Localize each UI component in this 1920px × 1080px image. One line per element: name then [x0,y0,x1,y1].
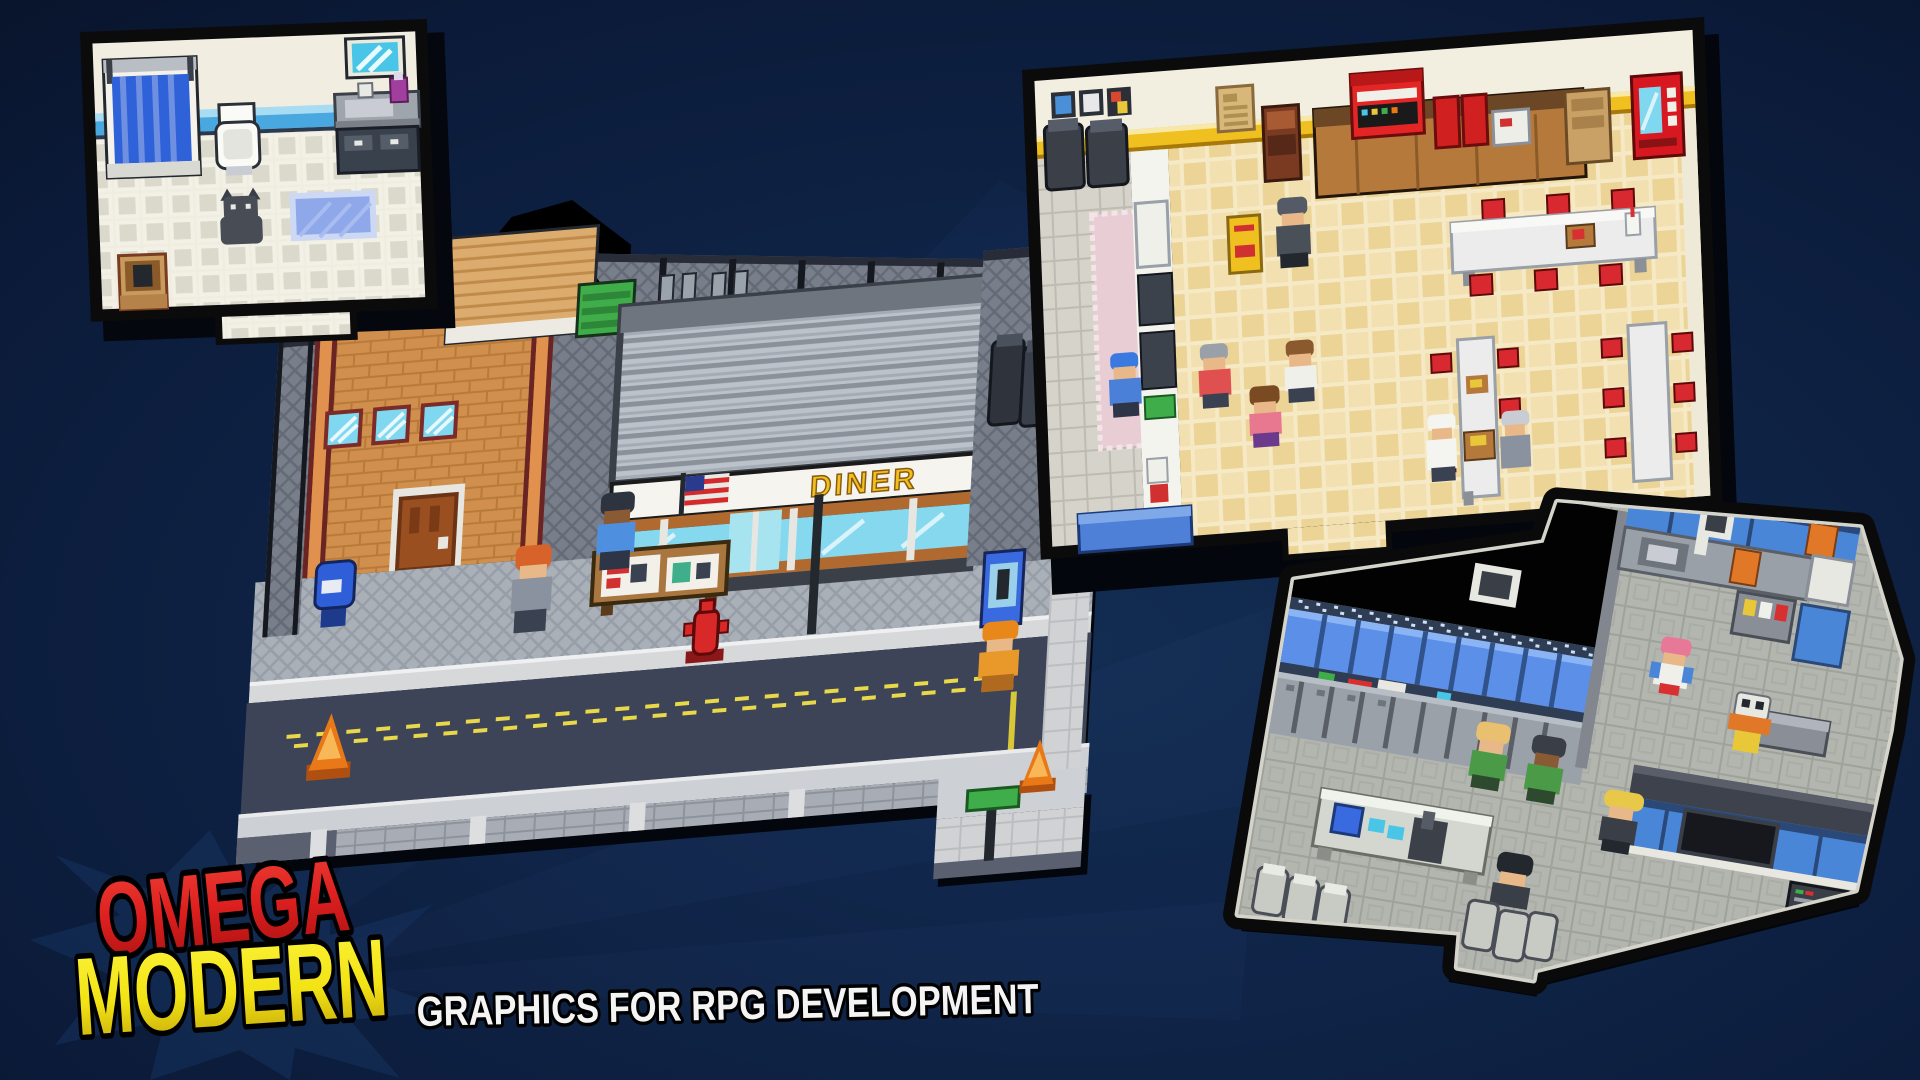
svg-text:MODERN: MODERN [72,916,391,1059]
